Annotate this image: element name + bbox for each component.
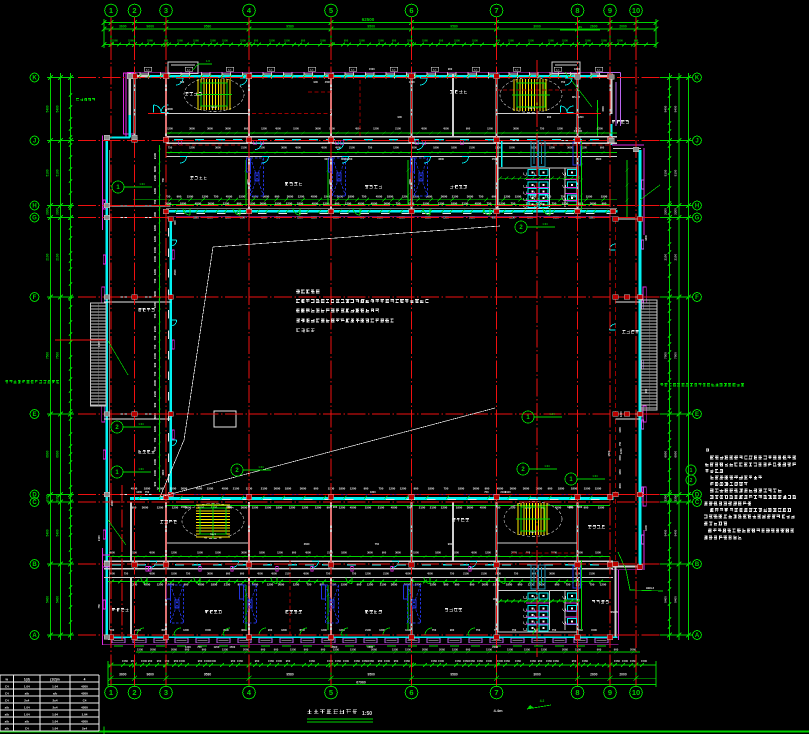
svg-text:E: E (695, 412, 699, 418)
svg-text:1500: 1500 (252, 506, 259, 510)
svg-text:1800: 1800 (259, 551, 265, 555)
svg-text:1560: 1560 (193, 39, 199, 43)
svg-text:900: 900 (444, 583, 449, 587)
svg-text:1200: 1200 (189, 146, 195, 150)
svg-text:2100: 2100 (349, 146, 355, 150)
svg-text:900: 900 (555, 583, 560, 587)
svg-text:1500: 1500 (601, 195, 608, 199)
svg-text:1800: 1800 (571, 487, 578, 491)
svg-text:x/b: x/b (53, 692, 58, 696)
svg-text:3600: 3600 (482, 583, 489, 587)
svg-text:1800: 1800 (180, 202, 187, 206)
svg-text:900: 900 (202, 648, 207, 652)
svg-text:4500: 4500 (252, 195, 259, 199)
svg-text:2x4: 2x4 (24, 699, 29, 703)
svg-text:1200: 1200 (441, 506, 448, 510)
svg-text:3600: 3600 (467, 195, 474, 199)
svg-text:C4: C4 (25, 727, 29, 731)
svg-text:1500: 1500 (222, 648, 228, 652)
svg-text:900: 900 (518, 583, 523, 587)
svg-text:1500: 1500 (591, 628, 597, 632)
svg-text:2x4: 2x4 (52, 706, 57, 710)
svg-text:3600: 3600 (215, 146, 221, 150)
svg-text:900: 900 (485, 487, 490, 491)
svg-text:1800: 1800 (348, 195, 355, 199)
svg-text:750: 750 (375, 542, 380, 546)
svg-text:1500: 1500 (497, 659, 503, 663)
svg-text:900: 900 (292, 551, 297, 555)
svg-text:1560: 1560 (601, 39, 607, 43)
svg-text:1200: 1200 (367, 583, 374, 587)
svg-text:1200: 1200 (183, 628, 189, 632)
svg-text:750: 750 (307, 583, 312, 587)
svg-text:1500: 1500 (562, 39, 568, 43)
svg-text:1800: 1800 (285, 487, 292, 491)
svg-text:900: 900 (324, 157, 329, 161)
svg-text:1500: 1500 (365, 506, 372, 510)
svg-text:1200: 1200 (157, 583, 164, 587)
svg-text:1:24: 1:24 (258, 465, 264, 469)
svg-text:750: 750 (432, 628, 437, 632)
svg-text:900: 900 (578, 505, 583, 509)
svg-text:900: 900 (470, 583, 475, 587)
svg-text:1200: 1200 (409, 80, 415, 84)
svg-text:1800: 1800 (281, 628, 287, 632)
svg-text:1200: 1200 (172, 506, 179, 510)
svg-text:1560: 1560 (147, 39, 153, 43)
svg-text:2060: 2060 (562, 648, 568, 652)
svg-text:900: 900 (414, 487, 419, 491)
svg-text:900: 900 (450, 628, 455, 632)
svg-text:900: 900 (357, 583, 362, 587)
svg-text:1500: 1500 (293, 127, 299, 131)
svg-text:1560: 1560 (368, 659, 374, 663)
svg-text:1800: 1800 (451, 202, 458, 206)
svg-text:3600: 3600 (391, 583, 398, 587)
svg-text:1:50: 1:50 (362, 711, 372, 717)
svg-text:2060: 2060 (171, 648, 177, 652)
svg-text:F: F (33, 295, 37, 301)
svg-text:1.04: 1.04 (82, 713, 88, 717)
svg-text:750: 750 (197, 645, 202, 649)
svg-text:4500: 4500 (275, 127, 281, 131)
svg-text:900: 900 (177, 195, 182, 199)
svg-text:E: E (32, 412, 36, 418)
svg-text:1560: 1560 (112, 39, 118, 43)
svg-text:900: 900 (584, 506, 589, 510)
svg-text:1560: 1560 (582, 659, 588, 663)
svg-text:1.04: 1.04 (52, 727, 58, 731)
svg-text:4500: 4500 (607, 450, 611, 456)
svg-text:7500: 7500 (674, 352, 678, 359)
svg-text:900: 900 (153, 481, 157, 486)
svg-text:3600: 3600 (281, 146, 287, 150)
svg-text:4500: 4500 (405, 572, 411, 576)
svg-text:1800: 1800 (435, 551, 441, 555)
svg-text:4200: 4200 (81, 706, 88, 710)
svg-text:9500: 9500 (368, 673, 376, 677)
svg-text:1500: 1500 (137, 648, 143, 652)
svg-text:750: 750 (566, 583, 571, 587)
svg-text:4500: 4500 (475, 202, 482, 206)
svg-text:4500: 4500 (443, 127, 449, 131)
svg-text:4500: 4500 (303, 572, 309, 576)
svg-text:4: 4 (84, 678, 86, 682)
svg-text:1200: 1200 (557, 127, 563, 131)
svg-text:K: K (32, 76, 37, 82)
svg-text:4500: 4500 (257, 572, 263, 576)
svg-text:2100: 2100 (383, 572, 389, 576)
svg-text:9580: 9580 (450, 25, 458, 29)
svg-text:1200: 1200 (389, 487, 396, 491)
svg-text:900: 900 (275, 195, 280, 199)
svg-text:4500: 4500 (555, 506, 562, 510)
svg-text:750: 750 (326, 572, 331, 576)
svg-text:4200: 4200 (81, 685, 88, 689)
svg-text:1200: 1200 (329, 127, 335, 131)
svg-text:1560: 1560 (404, 659, 410, 663)
svg-text:H: H (32, 204, 36, 210)
svg-text:3600: 3600 (567, 146, 573, 150)
svg-text:1800: 1800 (153, 224, 157, 231)
svg-text:5: 5 (329, 6, 333, 15)
svg-text:750: 750 (444, 487, 449, 491)
svg-text:1500: 1500 (249, 202, 256, 206)
svg-text:1560: 1560 (320, 39, 326, 43)
svg-text:1800: 1800 (341, 551, 347, 555)
svg-text:1560: 1560 (378, 39, 384, 43)
svg-text:4500: 4500 (271, 572, 277, 576)
svg-text:x/b: x/b (25, 720, 30, 724)
svg-text:3600: 3600 (241, 628, 247, 632)
svg-text:1200: 1200 (339, 506, 346, 510)
svg-text:3600: 3600 (523, 487, 530, 491)
svg-text:750: 750 (514, 572, 519, 576)
svg-text:1800: 1800 (110, 500, 114, 506)
svg-text:3600: 3600 (263, 195, 270, 199)
svg-text:1800: 1800 (211, 583, 218, 587)
svg-text:2100: 2100 (97, 535, 101, 541)
svg-text:7: 7 (494, 6, 498, 15)
svg-text:1200: 1200 (400, 487, 407, 491)
svg-text:950: 950 (392, 39, 397, 43)
svg-text:750: 750 (552, 202, 557, 206)
svg-text:900: 900 (173, 220, 177, 225)
svg-text:750: 750 (153, 335, 157, 340)
svg-text:1500: 1500 (170, 487, 177, 491)
svg-text:1500: 1500 (641, 659, 647, 663)
svg-text:1200: 1200 (379, 628, 385, 632)
svg-text:1560: 1560 (548, 39, 554, 43)
svg-text:1500: 1500 (602, 106, 605, 112)
svg-text:1500: 1500 (327, 659, 333, 663)
svg-text:1500: 1500 (197, 551, 203, 555)
svg-text:900: 900 (304, 648, 309, 652)
svg-text:950: 950 (572, 659, 577, 663)
svg-text:4500: 4500 (305, 551, 311, 555)
svg-text:5400: 5400 (56, 105, 60, 112)
svg-text:2600: 2600 (590, 673, 598, 677)
svg-text:6900: 6900 (56, 450, 60, 457)
svg-text:1200: 1200 (289, 506, 296, 510)
svg-text:1500: 1500 (619, 455, 622, 461)
svg-text:5400: 5400 (664, 596, 668, 603)
svg-text:2100: 2100 (430, 506, 437, 510)
svg-text:900: 900 (526, 551, 531, 555)
svg-text:4500: 4500 (391, 506, 398, 510)
svg-text:950: 950 (394, 659, 399, 663)
svg-text:1200: 1200 (153, 268, 157, 275)
svg-text:9580: 9580 (450, 673, 458, 677)
svg-text:1560: 1560 (128, 39, 134, 43)
svg-text:900: 900 (153, 402, 157, 407)
svg-text:900: 900 (238, 583, 243, 587)
svg-text:62500: 62500 (362, 17, 375, 22)
svg-text:3600: 3600 (153, 290, 157, 297)
svg-text:J: J (33, 139, 36, 145)
svg-text:1500: 1500 (187, 195, 194, 199)
svg-text:1: 1 (109, 6, 113, 15)
svg-text:1.5: 1.5 (206, 59, 210, 63)
svg-text:900: 900 (184, 583, 189, 587)
svg-text:3600: 3600 (142, 506, 149, 510)
svg-text:900: 900 (398, 115, 403, 119)
svg-text:2: 2 (132, 688, 136, 697)
svg-text:750: 750 (153, 344, 157, 349)
svg-text:2000: 2000 (619, 673, 627, 677)
svg-text:900: 900 (153, 362, 157, 367)
svg-text:900: 900 (226, 572, 231, 576)
svg-text:1560: 1560 (585, 39, 591, 43)
svg-text:1500: 1500 (525, 506, 532, 510)
svg-text:1200: 1200 (185, 645, 191, 649)
svg-text:900: 900 (382, 551, 387, 555)
svg-text:5400: 5400 (56, 596, 60, 603)
svg-text:5400: 5400 (674, 529, 678, 536)
svg-text:950: 950 (439, 39, 444, 43)
svg-text:1200: 1200 (153, 187, 157, 194)
svg-text:5400: 5400 (664, 105, 668, 112)
svg-text:2100: 2100 (664, 254, 668, 261)
svg-text:9580: 9580 (286, 25, 294, 29)
svg-text:4500: 4500 (149, 572, 155, 576)
svg-text:1500: 1500 (153, 352, 157, 359)
svg-text:3600: 3600 (153, 412, 157, 419)
svg-text:1a.1: 1a.1 (210, 532, 216, 536)
svg-text:1200: 1200 (153, 301, 157, 308)
svg-text:2100: 2100 (395, 127, 401, 131)
svg-text:1200: 1200 (323, 202, 330, 206)
svg-text:950: 950 (254, 39, 259, 43)
svg-text:3300: 3300 (46, 494, 50, 501)
svg-text:1500: 1500 (269, 39, 275, 43)
svg-text:J: J (695, 139, 698, 145)
svg-text:4500: 4500 (325, 80, 331, 84)
svg-text:1560: 1560 (469, 659, 475, 663)
svg-text:2100: 2100 (452, 195, 459, 199)
svg-text:1500: 1500 (284, 39, 290, 43)
svg-text:3300: 3300 (56, 494, 60, 501)
svg-text:950: 950 (231, 659, 236, 663)
svg-text:750: 750 (124, 572, 129, 576)
svg-text:3: 3 (164, 6, 168, 15)
svg-text:4500: 4500 (173, 269, 177, 275)
svg-text:900: 900 (240, 572, 245, 576)
svg-text:1200: 1200 (485, 551, 491, 555)
svg-text:1.04: 1.04 (24, 706, 30, 710)
svg-text:1500: 1500 (405, 648, 411, 652)
svg-text:2060: 2060 (150, 648, 156, 652)
svg-text:C4: C4 (5, 692, 9, 696)
svg-text:1200: 1200 (167, 127, 173, 131)
svg-text:9580: 9580 (204, 673, 212, 677)
svg-text:1500: 1500 (384, 659, 390, 663)
svg-text:1800: 1800 (644, 234, 648, 240)
svg-text:2100: 2100 (481, 572, 487, 576)
svg-text:6: 6 (409, 6, 413, 15)
svg-text:3600: 3600 (467, 506, 474, 510)
svg-text:2100: 2100 (46, 253, 50, 260)
svg-text:3600: 3600 (167, 107, 173, 111)
svg-text:750: 750 (511, 202, 516, 206)
svg-text:1200: 1200 (438, 202, 445, 206)
svg-text:A: A (32, 633, 37, 639)
svg-text:1200: 1200 (504, 195, 511, 199)
svg-text:1500: 1500 (622, 659, 628, 663)
svg-text:750: 750 (479, 195, 484, 199)
svg-text:5400: 5400 (674, 596, 678, 603)
svg-text:2100: 2100 (153, 325, 157, 332)
svg-text:1.04: 1.04 (24, 713, 30, 717)
svg-text:3: 3 (164, 688, 168, 697)
svg-text:750: 750 (362, 195, 367, 199)
svg-text:2100: 2100 (419, 506, 426, 510)
svg-text:1200: 1200 (261, 127, 267, 131)
svg-text:3600: 3600 (395, 551, 401, 555)
svg-text:CKOO: CKOO (574, 129, 583, 133)
svg-text:3600: 3600 (438, 157, 444, 161)
svg-text:900: 900 (600, 146, 605, 150)
svg-text:1500: 1500 (541, 648, 547, 652)
svg-text:6: 6 (409, 688, 413, 697)
svg-text:1560: 1560 (477, 659, 483, 663)
svg-text:1200: 1200 (644, 525, 648, 531)
svg-text:1500: 1500 (290, 648, 296, 652)
svg-text:1200: 1200 (315, 506, 322, 510)
svg-text:4500: 4500 (471, 551, 477, 555)
svg-text:1200: 1200 (286, 202, 293, 206)
svg-text:1:24: 1:24 (542, 222, 548, 226)
svg-text:5100: 5100 (46, 169, 50, 176)
svg-text:1a.1: 1a.1 (530, 530, 536, 534)
svg-text:2100: 2100 (224, 583, 231, 587)
svg-text:1200: 1200 (487, 127, 493, 131)
svg-text:2000: 2000 (619, 25, 627, 29)
svg-text:3600: 3600 (260, 202, 267, 206)
svg-text:1200: 1200 (567, 505, 573, 509)
svg-text:750: 750 (379, 487, 384, 491)
svg-text:1500: 1500 (392, 648, 398, 652)
svg-text:1200: 1200 (136, 490, 142, 494)
svg-text:1560: 1560 (504, 659, 510, 663)
svg-text:4500: 4500 (371, 202, 378, 206)
svg-text:C4: C4 (5, 699, 9, 703)
svg-text:1500: 1500 (507, 648, 513, 652)
svg-text:900: 900 (547, 115, 552, 119)
svg-text:7500: 7500 (56, 352, 60, 359)
svg-text:950: 950 (301, 39, 306, 43)
svg-text:1200: 1200 (267, 583, 274, 587)
svg-text:1800: 1800 (458, 487, 465, 491)
svg-text:1500: 1500 (509, 146, 515, 150)
svg-text:1500: 1500 (179, 659, 185, 663)
svg-text:1560: 1560 (335, 659, 341, 663)
svg-text:4500: 4500 (149, 551, 155, 555)
svg-text:1:24: 1:24 (544, 464, 550, 468)
svg-text:1200: 1200 (578, 115, 584, 119)
svg-text:3300: 3300 (56, 208, 60, 215)
svg-text:750: 750 (450, 572, 455, 576)
svg-text:900: 900 (274, 648, 279, 652)
svg-text:4500: 4500 (427, 572, 433, 576)
svg-text:750: 750 (487, 202, 492, 206)
svg-text:1800: 1800 (433, 146, 439, 150)
svg-text:3600: 3600 (252, 583, 259, 587)
svg-text:3600: 3600 (207, 127, 213, 131)
svg-text:1800: 1800 (193, 216, 199, 220)
svg-text:1800: 1800 (153, 425, 157, 432)
svg-text:67960: 67960 (356, 681, 366, 685)
svg-text:750: 750 (396, 202, 401, 206)
svg-text:1560: 1560 (359, 39, 365, 43)
svg-text:1500: 1500 (222, 39, 228, 43)
svg-text:2100: 2100 (261, 487, 268, 491)
svg-text:2100: 2100 (241, 146, 247, 150)
svg-text:2100: 2100 (581, 146, 587, 150)
svg-text:1560: 1560 (210, 39, 216, 43)
svg-text:750: 750 (552, 628, 557, 632)
svg-text:3600: 3600 (109, 572, 115, 576)
svg-text:2100: 2100 (463, 572, 469, 576)
svg-text:9580: 9580 (286, 673, 294, 677)
svg-text:5400: 5400 (46, 529, 50, 536)
svg-text:900: 900 (644, 388, 648, 393)
svg-text:4500: 4500 (109, 551, 115, 555)
svg-text:900: 900 (314, 487, 319, 491)
svg-text:1560: 1560 (177, 39, 183, 43)
svg-text:1500: 1500 (207, 487, 214, 491)
svg-text:750: 750 (97, 604, 101, 609)
svg-text:10: 10 (632, 688, 640, 697)
svg-text:1500: 1500 (528, 39, 534, 43)
svg-text:1800: 1800 (297, 202, 304, 206)
svg-text:1200: 1200 (277, 551, 283, 555)
svg-text:3600: 3600 (189, 127, 195, 131)
svg-text:3300: 3300 (664, 208, 668, 215)
svg-text:x/b: x/b (5, 720, 10, 724)
svg-text:3600: 3600 (513, 127, 519, 131)
svg-text:4500: 4500 (153, 379, 157, 386)
svg-text:750: 750 (153, 199, 157, 204)
svg-text:1a.1: 1a.1 (528, 106, 534, 110)
svg-text:M5-4.5: M5-4.5 (572, 95, 581, 99)
svg-text:1500: 1500 (153, 246, 157, 253)
svg-text:900: 900 (261, 648, 266, 652)
svg-text:x/b: x/b (5, 706, 10, 710)
svg-text:750: 750 (484, 490, 489, 494)
svg-text:2100: 2100 (462, 202, 469, 206)
svg-text:7500: 7500 (664, 352, 668, 359)
